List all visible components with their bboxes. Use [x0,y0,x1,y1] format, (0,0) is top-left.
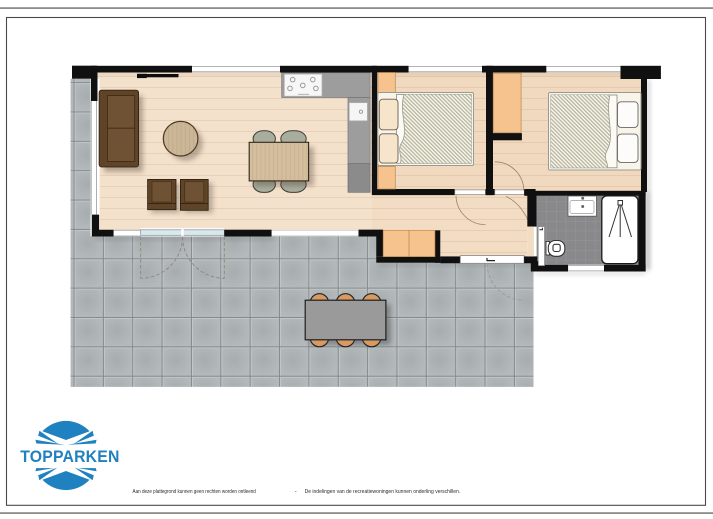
svg-text:-: - [295,489,297,495]
svg-text:TOPPARKEN: TOPPARKEN [20,448,119,467]
svg-text:Aan deze plattegrond kunnen ge: Aan deze plattegrond kunnen geen rechten… [133,489,256,496]
svg-text:De indelingen van de recreatie: De indelingen van de recreatiewoningen k… [305,489,461,495]
